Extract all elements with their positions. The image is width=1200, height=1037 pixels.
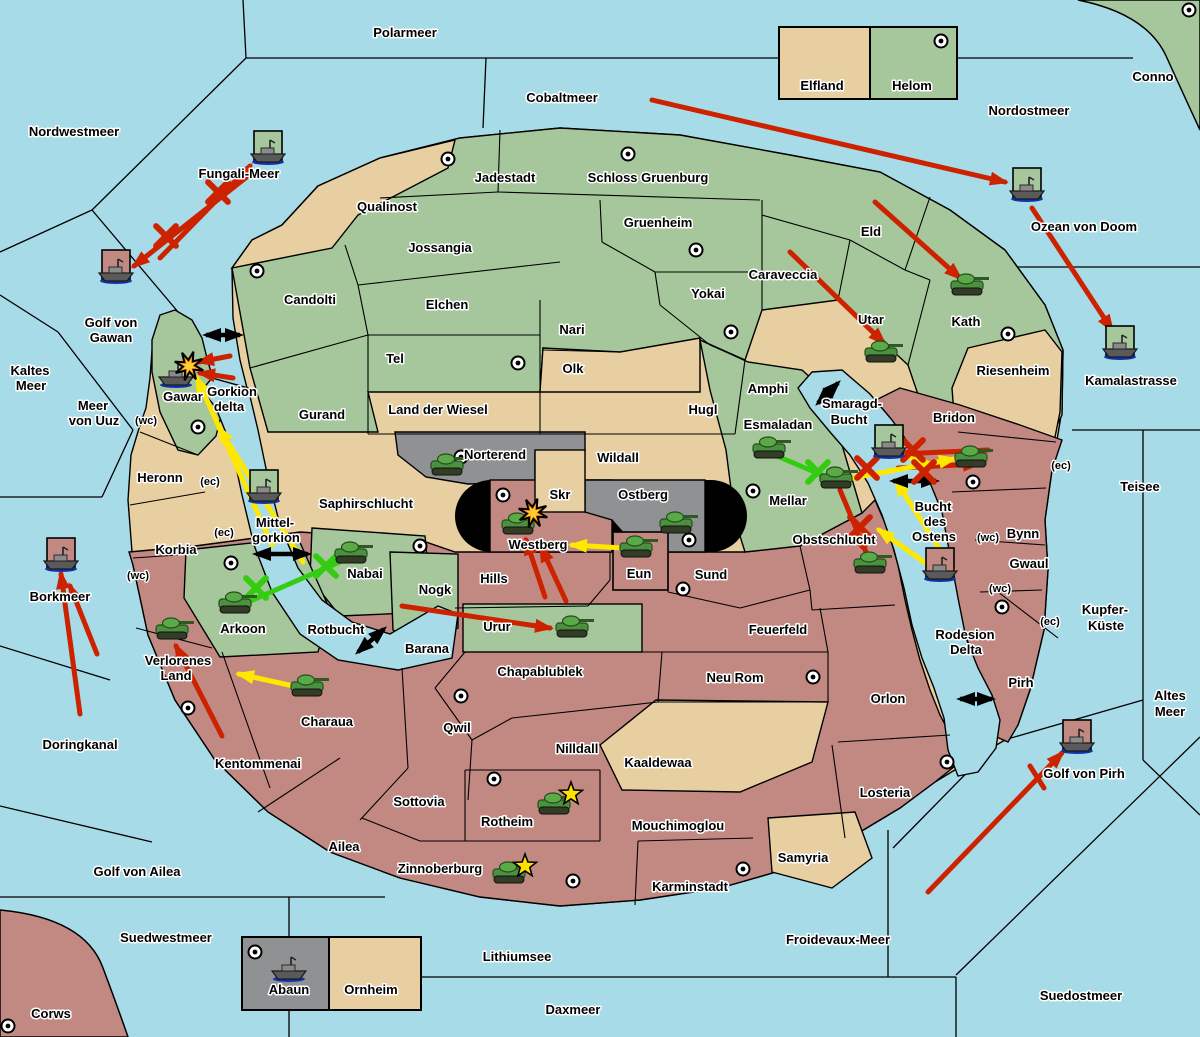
supply-center-icon	[935, 35, 948, 48]
label-bucht: Bucht	[915, 499, 953, 514]
label-gorkion: gorkion	[252, 530, 300, 545]
label-cobaltmeer: Cobaltmeer	[526, 90, 598, 105]
label-gruenheim: Gruenheim	[624, 215, 693, 230]
label-golf-von-ailea: Golf von Ailea	[94, 864, 182, 879]
label-suedostmeer: Suedostmeer	[1040, 988, 1122, 1003]
label-bucht: Bucht	[831, 412, 869, 427]
label-kaltes: Kaltes	[10, 363, 49, 378]
label--wc-: (wc)	[127, 570, 149, 582]
label-barana: Barana	[405, 641, 450, 656]
region-skr[interactable]	[535, 450, 585, 512]
supply-center-icon	[182, 702, 195, 715]
label-doringkanal: Doringkanal	[42, 737, 117, 752]
label--ec-: (ec)	[214, 527, 234, 539]
supply-center-icon	[1183, 4, 1196, 17]
label-yokai: Yokai	[691, 286, 725, 301]
label-ailea: Ailea	[328, 839, 360, 854]
label-utar: Utar	[858, 312, 884, 327]
label-norterend: Norterend	[464, 447, 526, 462]
label-von-uuz: von Uuz	[69, 413, 120, 428]
label-helom: Helom	[892, 78, 932, 93]
label-bynn: Bynn	[1007, 526, 1040, 541]
label-korbia: Korbia	[155, 542, 197, 557]
label-gorkion: Gorkion	[207, 384, 257, 399]
label-karminstadt: Karminstadt	[652, 879, 729, 894]
supply-center-icon	[725, 326, 738, 339]
supply-center-icon	[941, 756, 954, 769]
game-map: Fungali-MeerGolf von GawanGawarMittel-go…	[0, 0, 1200, 1037]
label-wildall: Wildall	[597, 450, 639, 465]
label--ec-: (ec)	[200, 476, 220, 488]
label-skr: Skr	[550, 487, 571, 502]
supply-center-icon	[497, 489, 510, 502]
label-verlorenes: Verlorenes	[145, 653, 212, 668]
label-eun: Eun	[627, 566, 652, 581]
label-qualinost: Qualinost	[357, 199, 418, 214]
label-esmaladan: Esmaladan	[744, 417, 813, 432]
supply-center-icon	[807, 671, 820, 684]
label-froidevaux-meer: Froidevaux-Meer	[786, 932, 890, 947]
region-ornheim[interactable]	[329, 937, 421, 1010]
label-conno: Conno	[1132, 69, 1173, 84]
label-bridon: Bridon	[933, 410, 975, 425]
label-meer: Meer	[78, 398, 108, 413]
label-sottovia: Sottovia	[393, 794, 445, 809]
label-chapablublek: Chapablublek	[497, 664, 583, 679]
label-elchen: Elchen	[426, 297, 469, 312]
label-delta: Delta	[950, 642, 983, 657]
supply-center-icon	[737, 863, 750, 876]
label-rotbucht: Rotbucht	[307, 622, 365, 637]
label-hills: Hills	[480, 571, 507, 586]
map-canvas[interactable]: Fungali-MeerGolf von GawanGawarMittel-go…	[0, 0, 1200, 1037]
label-kupfer-: Kupfer-	[1082, 602, 1128, 617]
label-nordostmeer: Nordostmeer	[989, 103, 1070, 118]
supply-center-icon	[1002, 328, 1015, 341]
label-pirh: Pirh	[1008, 675, 1033, 690]
label-urur: Urur	[483, 619, 510, 634]
supply-center-icon	[251, 265, 264, 278]
label-teisee: Teisee	[1120, 479, 1160, 494]
supply-center-icon	[567, 875, 580, 888]
label--wc-: (wc)	[135, 415, 157, 427]
label--wc-: (wc)	[989, 583, 1011, 595]
label--ec-: (ec)	[1051, 460, 1071, 472]
label-fungali-meer: Fungali-Meer	[199, 166, 280, 181]
label-polarmeer: Polarmeer	[373, 25, 437, 40]
supply-center-icon	[996, 601, 1009, 614]
label-mittel-: Mittel-	[256, 515, 294, 530]
label-land-der-wiesel: Land der Wiesel	[388, 402, 488, 417]
label-samyria: Samyria	[778, 850, 829, 865]
supply-center-icon	[677, 583, 690, 596]
label-heronn: Heronn	[137, 470, 183, 485]
label-obstschlucht: Obstschlucht	[792, 532, 876, 547]
label--ec-: (ec)	[1040, 616, 1060, 628]
label-golf-von-pirh: Golf von Pirh	[1043, 766, 1125, 781]
label-mouchimoglou: Mouchimoglou	[632, 818, 724, 833]
supply-center-icon	[967, 476, 980, 489]
label--wc-: (wc)	[977, 532, 999, 544]
label-arkoon: Arkoon	[220, 621, 266, 636]
label-candolti: Candolti	[284, 292, 336, 307]
label-eld: Eld	[861, 224, 881, 239]
supply-center-icon	[2, 1020, 15, 1033]
label-caraveccia: Caraveccia	[749, 267, 818, 282]
label-feuerfeld: Feuerfeld	[749, 622, 808, 637]
supply-center-icon	[192, 421, 205, 434]
supply-center-icon	[747, 485, 760, 498]
supply-center-icon	[622, 148, 635, 161]
label-nabai: Nabai	[347, 566, 382, 581]
label-elfland: Elfland	[800, 78, 843, 93]
label-land: Land	[160, 668, 191, 683]
label-delta: delta	[214, 399, 245, 414]
label-gurand: Gurand	[299, 407, 345, 422]
label-jossangia: Jossangia	[408, 240, 472, 255]
supply-center-icon	[690, 244, 703, 257]
supply-center-icon	[442, 153, 455, 166]
label-abaun: Abaun	[269, 982, 310, 997]
label-mellar: Mellar	[769, 493, 807, 508]
label-qwil: Qwil	[443, 720, 470, 735]
label-des: des	[924, 514, 946, 529]
label-lithiumsee: Lithiumsee	[483, 949, 552, 964]
label-meer: Meer	[1155, 704, 1185, 719]
supply-center-icon	[512, 357, 525, 370]
supply-center-icon	[683, 534, 696, 547]
supply-center-icon	[488, 773, 501, 786]
label-jadestadt: Jadestadt	[475, 170, 536, 185]
label-rodesion: Rodesion	[935, 627, 994, 642]
label-k-ste: Küste	[1088, 618, 1124, 633]
label-kentommenai: Kentommenai	[215, 756, 301, 771]
label-westberg: Westberg	[509, 537, 568, 552]
label-sund: Sund	[695, 567, 728, 582]
label-kaaldewaa: Kaaldewaa	[624, 755, 692, 770]
label-nari: Nari	[559, 322, 584, 337]
label-nordwestmeer: Nordwestmeer	[29, 124, 119, 139]
label-nogk: Nogk	[419, 582, 452, 597]
label-golf-von: Golf von	[85, 315, 138, 330]
label-losteria: Losteria	[860, 785, 911, 800]
label-hugl: Hugl	[689, 402, 718, 417]
label-charaua: Charaua	[301, 714, 354, 729]
label-neu-rom: Neu Rom	[706, 670, 763, 685]
label-olk: Olk	[563, 361, 585, 376]
supply-center-icon	[455, 690, 468, 703]
label-nilldall: Nilldall	[556, 741, 599, 756]
label-kamalastrasse: Kamalastrasse	[1085, 373, 1177, 388]
label-schloss-gruenburg: Schloss Gruenburg	[588, 170, 709, 185]
label-meer: Meer	[16, 378, 46, 393]
label-corws: Corws	[31, 1006, 71, 1021]
supply-center-icon	[414, 540, 427, 553]
label-ozean-von-doom: Ozean von Doom	[1031, 219, 1137, 234]
label-kath: Kath	[952, 314, 981, 329]
label-amphi: Amphi	[748, 381, 788, 396]
label-ornheim: Ornheim	[344, 982, 397, 997]
label-borkmeer: Borkmeer	[30, 589, 91, 604]
label-altes: Altes	[1154, 688, 1186, 703]
label-gwaul: Gwaul	[1009, 556, 1048, 571]
label-suedwestmeer: Suedwestmeer	[120, 930, 212, 945]
label-ostberg: Ostberg	[618, 487, 668, 502]
label-daxmeer: Daxmeer	[546, 1002, 601, 1017]
label-gawar: Gawar	[163, 389, 203, 404]
supply-center-icon	[249, 946, 262, 959]
label-rotheim: Rotheim	[481, 814, 533, 829]
label-zinnoberburg: Zinnoberburg	[398, 861, 483, 876]
supply-center-icon	[225, 557, 238, 570]
label-saphirschlucht: Saphirschlucht	[319, 496, 414, 511]
label-smaragd-: Smaragd-	[822, 396, 882, 411]
label-ostens: Ostens	[912, 529, 956, 544]
label-gawan: Gawan	[90, 330, 133, 345]
label-orlon: Orlon	[871, 691, 906, 706]
label-tel: Tel	[386, 351, 404, 366]
label-riesenheim: Riesenheim	[977, 363, 1050, 378]
